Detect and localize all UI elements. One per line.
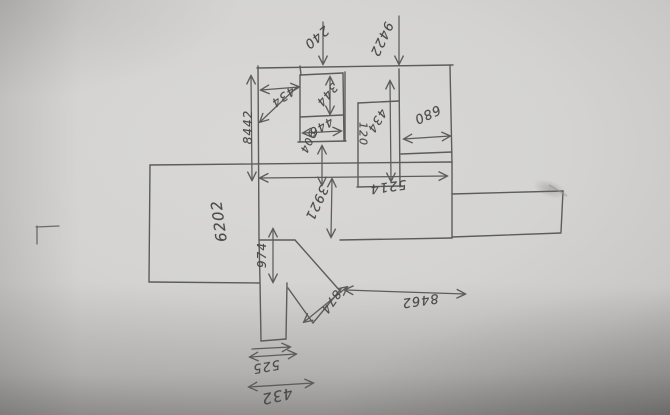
dimension-label: 240: [301, 22, 332, 51]
dimension-label: 525: [251, 356, 281, 376]
dimension-label: 874: [318, 287, 344, 316]
dimension-label: 432: [260, 384, 295, 408]
dimension-label: 6202: [207, 199, 231, 243]
dimension-label: 974: [255, 242, 269, 268]
dimension-label: 8462: [401, 290, 440, 310]
dimension-label: 5214: [369, 176, 408, 196]
dimension-label: 434: [268, 84, 297, 110]
dimension-label: 680: [411, 101, 443, 126]
dimension-label: 344: [313, 81, 340, 110]
dimension-label: 3921: [301, 183, 330, 223]
dimension-label: 904: [297, 128, 319, 155]
dimension-labels: 2409422434844234444643412068090462023921…: [0, 0, 670, 415]
dimension-label: 8442: [241, 110, 255, 145]
paper-photo: 2409422434844234444643412068090462023921…: [0, 0, 670, 415]
dimension-label: 9422: [366, 19, 395, 59]
dimension-label: 120: [357, 122, 370, 146]
